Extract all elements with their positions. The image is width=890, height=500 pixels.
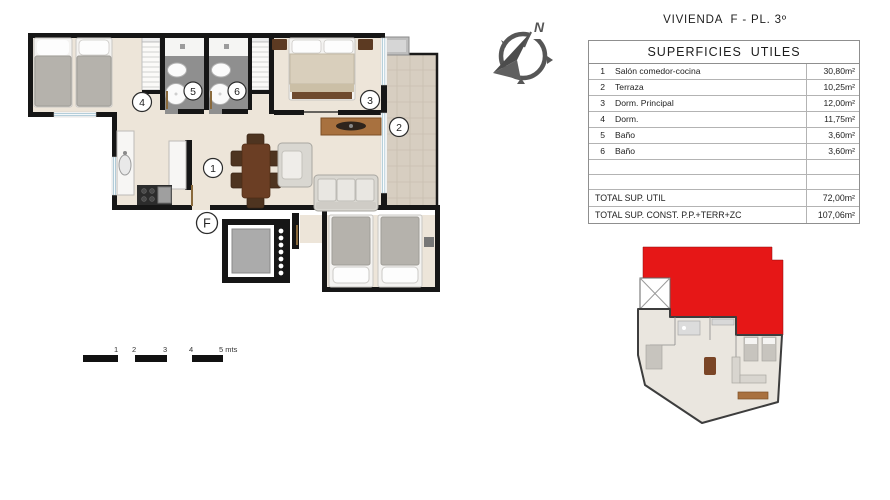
scale-bar-segment <box>192 355 223 362</box>
row-number: 1 <box>589 64 607 79</box>
key-plan <box>620 245 798 430</box>
main-floor-plan: 1 2 3 4 5 6 F <box>20 25 450 305</box>
tv-cabinet <box>321 118 381 135</box>
table-row: 6 Baño 3,60m² <box>589 144 859 160</box>
row-number: 5 <box>589 128 607 143</box>
sofa <box>314 175 378 211</box>
scale-bar-segment <box>83 355 118 362</box>
scale-bar: 1 2 3 4 5 mts <box>83 345 253 365</box>
row-value: 11,75m² <box>806 112 859 127</box>
compass-north-label: N <box>534 19 545 35</box>
row-label: Salón comedor-cocina <box>607 64 806 79</box>
row-label: Baño <box>607 128 806 143</box>
row-value: 30,80m² <box>806 64 859 79</box>
table-row: 4 Dorm. 11,75m² <box>589 112 859 128</box>
room-label-4: 4 <box>139 97 145 109</box>
table-row-empty <box>589 160 859 175</box>
scale-tick: 1 <box>114 345 118 354</box>
table-row-total-const: TOTAL SUP. CONST. P.P.+TERR+ZC 107,06m² <box>589 207 859 223</box>
scale-tick: 5 mts <box>219 345 237 354</box>
scale-tick: 2 <box>132 345 136 354</box>
row-number: 6 <box>589 144 607 159</box>
total-value: 107,06m² <box>806 207 859 223</box>
table-row: 2 Terraza 10,25m² <box>589 80 859 96</box>
floorplan-sheet: 1 2 3 4 5 6 F N VIVIE <box>0 0 890 500</box>
armchair <box>278 143 312 187</box>
row-label: Dorm. <box>607 112 806 127</box>
row-number: 4 <box>589 112 607 127</box>
label-bath6: 6 <box>228 82 246 100</box>
room-label-1: 1 <box>210 163 216 175</box>
bathroom-6 <box>209 38 248 114</box>
row-number: 3 <box>589 96 607 111</box>
room-label-6: 6 <box>234 86 240 98</box>
row-value: 12,00m² <box>806 96 859 111</box>
room-label-2: 2 <box>396 122 402 134</box>
row-value: 3,60m² <box>806 144 859 159</box>
table-row-empty <box>589 175 859 190</box>
row-label: Terraza <box>607 80 806 95</box>
total-label: TOTAL SUP. CONST. P.P.+TERR+ZC <box>589 207 806 223</box>
label-terrace: 2 <box>390 118 409 137</box>
areas-table: SUPERFICIES UTILES 1 Salón comedor-cocin… <box>588 40 860 224</box>
neighbour-beds <box>329 215 434 287</box>
room-label-3: 3 <box>367 95 373 107</box>
row-label: Baño <box>607 144 806 159</box>
table-row: 1 Salón comedor-cocina 30,80m² <box>589 64 859 80</box>
unit-letter: F <box>203 217 211 231</box>
room-label-5: 5 <box>190 86 196 98</box>
table-row: 5 Baño 3,60m² <box>589 128 859 144</box>
page-title: VIVIENDA F - PL. 3º <box>588 14 862 26</box>
scale-bar-segment <box>135 355 167 362</box>
label-unit-f: F <box>197 213 218 234</box>
row-label: Dorm. Principal <box>607 96 806 111</box>
row-value: 3,60m² <box>806 128 859 143</box>
total-label: TOTAL SUP. UTIL <box>589 190 806 206</box>
row-number: 2 <box>589 80 607 95</box>
compass-icon: N <box>487 18 559 90</box>
table-row-total-util: TOTAL SUP. UTIL 72,00m² <box>589 190 859 207</box>
label-living: 1 <box>204 159 223 178</box>
scale-tick: 3 <box>163 345 167 354</box>
areas-table-header: SUPERFICIES UTILES <box>589 41 859 64</box>
label-dorm: 4 <box>133 93 152 112</box>
row-value: 10,25m² <box>806 80 859 95</box>
total-value: 72,00m² <box>806 190 859 206</box>
label-bath5: 5 <box>184 82 202 100</box>
stairwell <box>640 278 670 309</box>
bathroom-5 <box>165 38 204 114</box>
label-dorm-principal: 3 <box>361 91 380 110</box>
table-row: 3 Dorm. Principal 12,00m² <box>589 96 859 112</box>
scale-tick: 4 <box>189 345 193 354</box>
